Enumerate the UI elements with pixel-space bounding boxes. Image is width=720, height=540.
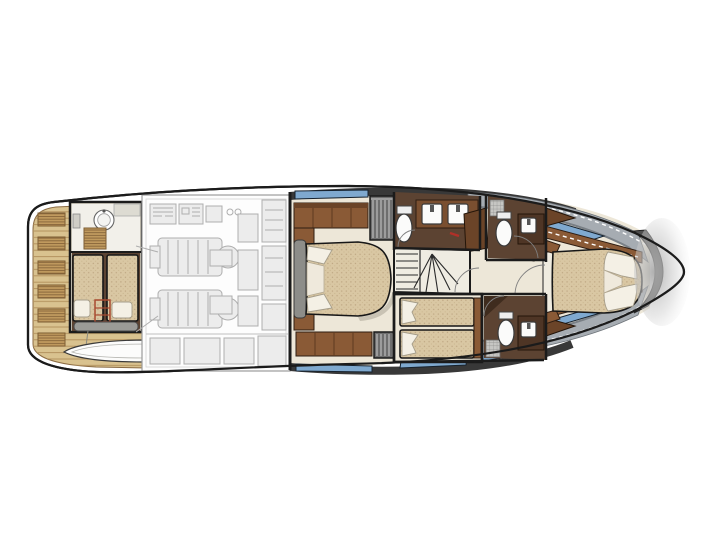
headboard bbox=[294, 240, 306, 318]
toilet-icon bbox=[498, 320, 514, 346]
toilet-tank bbox=[397, 206, 412, 214]
faucet-icon bbox=[527, 323, 531, 329]
blanket-fold bbox=[307, 262, 324, 296]
engine-room bbox=[136, 195, 290, 371]
twin-cabin bbox=[394, 294, 482, 362]
wardrobe bbox=[374, 332, 396, 358]
crew-cabin bbox=[70, 202, 142, 332]
transom-seat bbox=[74, 322, 138, 331]
sideboard bbox=[294, 203, 368, 228]
master-cabin bbox=[294, 196, 398, 358]
washbasin-bowl bbox=[98, 214, 111, 227]
deck-plan-drawing bbox=[0, 0, 720, 540]
faucet-icon bbox=[527, 219, 531, 225]
crew-bathroom bbox=[70, 204, 142, 252]
staircase bbox=[394, 248, 470, 294]
dresser bbox=[296, 332, 372, 356]
lazarette-boxes bbox=[146, 334, 288, 366]
toilet-tank bbox=[497, 212, 511, 219]
shower-grate bbox=[486, 340, 500, 357]
toilet-icon bbox=[396, 214, 412, 242]
faucet-icon bbox=[102, 209, 105, 212]
bow bbox=[634, 218, 690, 326]
day-head bbox=[488, 196, 546, 260]
cabinet bbox=[73, 214, 80, 228]
faucet-icon bbox=[456, 205, 460, 212]
toilet-tank bbox=[499, 312, 513, 319]
bow-shade bbox=[634, 218, 690, 326]
vanity-cabinet bbox=[464, 208, 488, 252]
toilet-icon bbox=[496, 220, 512, 246]
hull-window bbox=[295, 190, 368, 199]
faucet-icon bbox=[430, 205, 434, 212]
pillow bbox=[112, 302, 132, 318]
counter bbox=[114, 204, 140, 216]
foot-locker bbox=[474, 298, 481, 358]
shower-grate bbox=[84, 228, 106, 249]
twin-ensuite bbox=[484, 296, 546, 360]
pillow bbox=[74, 300, 90, 317]
crew-berth-area bbox=[72, 253, 140, 331]
yacht-deck-plan bbox=[0, 0, 720, 540]
